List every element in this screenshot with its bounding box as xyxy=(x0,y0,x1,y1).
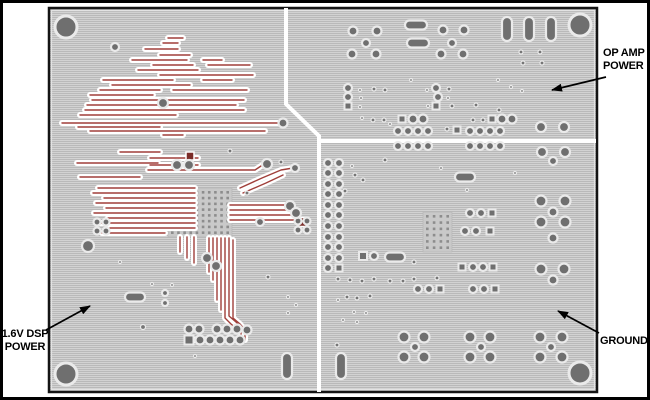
square-pad xyxy=(437,286,444,293)
via-pad xyxy=(335,211,343,219)
via-pad xyxy=(279,119,288,128)
micro-via xyxy=(360,279,364,283)
mounting-hole xyxy=(55,363,77,385)
square-pad xyxy=(185,336,194,345)
micro-via xyxy=(521,61,525,65)
oval-pad xyxy=(336,353,346,379)
micro-via xyxy=(440,167,443,170)
dsp-bga-footprint-pad xyxy=(196,231,199,234)
via-pad xyxy=(536,122,546,132)
micro-via xyxy=(410,79,413,82)
via-pad xyxy=(335,243,343,251)
dsp-bga-footprint-pad xyxy=(214,208,217,211)
micro-via xyxy=(450,104,454,108)
via-pad xyxy=(434,93,442,101)
dsp-bga-footprint-pad xyxy=(214,226,217,229)
micro-via xyxy=(353,311,356,314)
micro-via xyxy=(355,296,359,300)
via-pad xyxy=(370,252,378,260)
via-pad xyxy=(476,127,484,135)
via-pad xyxy=(394,127,402,135)
via-pad xyxy=(476,142,484,150)
via-pad xyxy=(373,27,382,36)
micro-via xyxy=(279,160,283,164)
via-pad xyxy=(486,142,494,150)
ic-footprint-pad xyxy=(446,228,449,231)
via-pad xyxy=(291,164,299,172)
ic-footprint-pad xyxy=(426,228,429,231)
micro-via xyxy=(345,295,349,299)
via-pad xyxy=(223,325,232,334)
micro-via xyxy=(383,158,387,162)
via-pad xyxy=(414,127,422,135)
dsp-bga-footprint-pad xyxy=(208,214,211,217)
ic-footprint-pad xyxy=(440,228,443,231)
via-pad xyxy=(480,285,488,293)
via-pad xyxy=(536,264,547,275)
via-pad xyxy=(324,180,332,188)
dsp-bga-footprint-pad xyxy=(208,220,211,223)
dsp-bga-footprint-pad xyxy=(220,220,223,223)
oval-pad xyxy=(405,21,427,30)
micro-via xyxy=(426,89,429,92)
via-pad xyxy=(226,336,235,345)
label-dsp-power-line1: 1.6V DSP xyxy=(1,328,49,341)
via-pad xyxy=(262,159,272,169)
via-pad xyxy=(536,217,547,228)
micro-via xyxy=(337,299,340,302)
via-pad xyxy=(94,219,101,226)
dsp-bga-footprint-pad xyxy=(171,231,174,234)
via-pad xyxy=(535,332,546,343)
micro-via xyxy=(361,178,365,182)
micro-via xyxy=(266,275,270,279)
micro-via xyxy=(359,89,362,92)
square-pad xyxy=(459,264,466,271)
ic-footprint-pad xyxy=(446,240,449,243)
label-ground-line1: GROUND xyxy=(600,335,650,348)
via-pad xyxy=(158,98,168,108)
micro-via xyxy=(540,61,544,65)
via-pad xyxy=(439,26,448,35)
dsp-bga-footprint-pad xyxy=(220,203,223,206)
micro-via xyxy=(481,118,485,122)
micro-via xyxy=(141,325,146,330)
dsp-bga-footprint-pad xyxy=(214,203,217,206)
via-pad xyxy=(213,325,222,334)
dsp-bga-footprint-pad xyxy=(202,220,205,223)
via-pad xyxy=(172,160,182,170)
ic-footprint-pad xyxy=(433,246,436,249)
via-pad xyxy=(549,208,558,217)
dsp-bga-footprint-pad xyxy=(220,197,223,200)
via-pad xyxy=(335,201,343,209)
micro-via xyxy=(194,355,197,358)
dsp-bga-footprint-pad xyxy=(208,191,211,194)
via-pad xyxy=(425,285,433,293)
ic-footprint-pad xyxy=(446,215,449,218)
ic-footprint-pad xyxy=(433,215,436,218)
via-pad xyxy=(419,115,428,124)
ic-footprint-pad xyxy=(426,240,429,243)
dsp-bga-footprint-pad xyxy=(208,197,211,200)
micro-via xyxy=(372,277,376,281)
oval-pad xyxy=(546,17,556,41)
dsp-bga-footprint-pad xyxy=(202,197,205,200)
micro-via xyxy=(412,277,416,281)
via-pad xyxy=(211,261,221,271)
dsp-bga-footprint-pad xyxy=(214,191,217,194)
micro-via xyxy=(510,86,513,89)
mounting-hole xyxy=(569,362,591,384)
dsp-bga-footprint-pad xyxy=(189,231,192,234)
oval-pad xyxy=(455,173,475,182)
label-dsp-power-line2: POWER xyxy=(1,341,49,354)
via-pad xyxy=(498,115,507,124)
via-pad xyxy=(324,159,332,167)
micro-via xyxy=(514,172,517,175)
via-pad xyxy=(324,190,332,198)
via-pad xyxy=(466,142,474,150)
via-pad xyxy=(184,160,194,170)
via-pad xyxy=(485,332,496,343)
label-ground: GROUND xyxy=(600,335,650,348)
micro-via xyxy=(521,90,524,93)
micro-via xyxy=(359,106,362,109)
via-pad xyxy=(469,285,477,293)
via-pad xyxy=(419,332,430,343)
micro-via xyxy=(447,97,450,100)
dsp-bga-footprint-pad xyxy=(220,231,223,234)
via-pad xyxy=(243,326,252,335)
via-pad xyxy=(549,157,557,165)
label-op-amp-power-line1: OP AMP xyxy=(603,47,649,60)
micro-via xyxy=(348,278,352,282)
dsp-bga-footprint-pad xyxy=(202,191,205,194)
via-pad xyxy=(485,352,496,363)
ic-footprint-pad xyxy=(426,221,429,224)
dsp-bga-footprint-pad xyxy=(183,231,186,234)
via-pad xyxy=(324,169,332,177)
ic-footprint-pad xyxy=(433,228,436,231)
via-pad xyxy=(508,115,517,124)
via-pad xyxy=(496,142,504,150)
via-pad xyxy=(162,300,168,306)
via-pad xyxy=(486,127,494,135)
via-pad xyxy=(459,50,468,59)
pcb-board-graphic xyxy=(0,0,650,400)
micro-via xyxy=(287,296,290,299)
via-pad xyxy=(557,352,568,363)
square-pad xyxy=(489,116,496,123)
ic-footprint-pad xyxy=(440,221,443,224)
via-pad xyxy=(466,209,474,217)
via-pad xyxy=(437,50,446,59)
via-pad xyxy=(324,233,332,241)
via-pad xyxy=(94,228,101,235)
via-pad xyxy=(162,290,168,296)
dsp-bga-footprint-pad xyxy=(208,231,211,234)
via-pad xyxy=(362,39,370,47)
via-pad xyxy=(414,142,422,150)
via-pad xyxy=(424,142,432,150)
ic-footprint-pad xyxy=(440,215,443,218)
dsp-bga-footprint-pad xyxy=(226,226,229,229)
ic-footprint-pad xyxy=(446,221,449,224)
label-op-amp-power: OP AMP POWER xyxy=(603,47,649,72)
dsp-bga-footprint-pad xyxy=(226,191,229,194)
dsp-bga-footprint-pad xyxy=(214,231,217,234)
via-pad xyxy=(549,234,558,243)
micro-via xyxy=(342,319,345,322)
mounting-hole xyxy=(55,16,77,38)
via-pad xyxy=(233,325,242,334)
ic-footprint-pad xyxy=(446,234,449,237)
via-pad xyxy=(216,336,225,345)
dsp-bga-footprint-pad xyxy=(220,214,223,217)
via-pad xyxy=(335,222,343,230)
via-pad xyxy=(477,343,485,351)
via-pad xyxy=(549,276,558,285)
micro-via xyxy=(171,284,174,287)
via-pad xyxy=(394,142,402,150)
ic-footprint-pad xyxy=(440,246,443,249)
micro-via xyxy=(519,50,523,54)
ic-footprint xyxy=(423,212,452,252)
micro-via xyxy=(351,165,354,168)
square-pad xyxy=(399,116,406,123)
via-pad xyxy=(344,93,352,101)
ic-footprint-pad xyxy=(426,246,429,249)
micro-via xyxy=(353,173,357,177)
oval-pad xyxy=(282,353,292,379)
via-pad xyxy=(559,122,569,132)
micro-via xyxy=(497,79,500,82)
via-pad xyxy=(291,208,301,218)
via-pad xyxy=(557,332,568,343)
via-pad xyxy=(335,254,343,262)
micro-via xyxy=(245,191,249,195)
micro-via xyxy=(466,189,469,192)
micro-via xyxy=(151,283,154,286)
micro-via xyxy=(360,97,363,100)
dsp-bga-footprint-pad xyxy=(214,214,217,217)
via-pad xyxy=(460,26,469,35)
via-pad xyxy=(304,218,311,225)
square-pad xyxy=(359,252,367,260)
dsp-bga-footprint-pad xyxy=(220,208,223,211)
via-pad xyxy=(466,127,474,135)
micro-via xyxy=(295,304,298,307)
ic-footprint-pad xyxy=(426,234,429,237)
via-pad xyxy=(414,285,422,293)
micro-via xyxy=(361,117,364,120)
via-pad xyxy=(344,84,352,92)
oval-pad xyxy=(407,39,429,48)
micro-via xyxy=(343,189,347,193)
micro-via xyxy=(119,261,122,264)
square-pad xyxy=(489,210,496,217)
via-pad xyxy=(537,147,547,157)
via-pad xyxy=(547,343,555,351)
via-pad xyxy=(206,336,215,345)
ic-footprint-pad xyxy=(433,221,436,224)
dsp-bga-footprint-pad xyxy=(177,231,180,234)
dsp-bga-footprint-pad xyxy=(202,226,205,229)
via-pad xyxy=(560,196,571,207)
via-pad xyxy=(461,227,469,235)
via-pad xyxy=(256,218,264,226)
via-pad xyxy=(349,27,358,36)
via-pad xyxy=(111,43,119,51)
dsp-bga-footprint-pad xyxy=(214,197,217,200)
micro-via xyxy=(372,87,376,91)
square-pad xyxy=(345,103,352,110)
square-pad xyxy=(454,127,461,134)
via-pad xyxy=(419,352,430,363)
via-pad xyxy=(324,222,332,230)
label-dsp-power: 1.6V DSP POWER xyxy=(1,328,49,353)
micro-via xyxy=(388,279,392,283)
micro-via xyxy=(228,149,232,153)
micro-via xyxy=(412,260,416,264)
dsp-bga-footprint-pad xyxy=(202,203,205,206)
oval-pad xyxy=(125,293,145,302)
via-pad xyxy=(536,196,547,207)
micro-via xyxy=(538,50,542,54)
via-pad xyxy=(335,159,343,167)
mounting-hole xyxy=(569,14,591,36)
oval-pad xyxy=(524,17,534,41)
via-pad xyxy=(404,127,412,135)
micro-via xyxy=(382,118,386,122)
ic-footprint-pad xyxy=(426,215,429,218)
via-pad xyxy=(424,127,432,135)
via-pad xyxy=(560,217,571,228)
dsp-bga-footprint-pad xyxy=(202,214,205,217)
micro-via xyxy=(335,343,339,347)
ic-footprint-pad xyxy=(440,240,443,243)
via-pad xyxy=(295,227,302,234)
micro-via xyxy=(371,118,375,122)
via-pad xyxy=(335,233,343,241)
via-pad xyxy=(324,201,332,209)
ic-footprint-pad xyxy=(440,234,443,237)
via-pad xyxy=(372,50,381,59)
micro-via xyxy=(435,276,439,280)
via-pad xyxy=(103,219,110,226)
ic-footprint-pad xyxy=(433,240,436,243)
via-pad xyxy=(82,240,94,252)
via-pad xyxy=(535,352,546,363)
via-pad xyxy=(448,39,456,47)
dsp-bga-footprint-pad xyxy=(220,191,223,194)
via-pad xyxy=(432,84,440,92)
dsp-bga-footprint-pad xyxy=(202,208,205,211)
micro-via xyxy=(356,321,359,324)
square-pad xyxy=(490,264,497,271)
via-pad xyxy=(236,336,245,345)
micro-via xyxy=(389,123,392,126)
micro-via xyxy=(447,87,451,91)
via-pad xyxy=(324,243,332,251)
via-pad xyxy=(195,325,204,334)
micro-via xyxy=(445,127,449,131)
via-pad xyxy=(324,264,332,272)
micro-via xyxy=(336,277,340,281)
via-pad xyxy=(103,228,110,235)
square-pad xyxy=(487,228,494,235)
oval-pad xyxy=(502,17,512,41)
via-pad xyxy=(348,50,357,59)
via-pad xyxy=(399,332,410,343)
dsp-bga-footprint-pad xyxy=(214,220,217,223)
dsp-bga-footprint-pad xyxy=(226,197,229,200)
micro-via xyxy=(383,88,387,92)
via-pad xyxy=(335,190,343,198)
via-pad xyxy=(465,352,476,363)
micro-via xyxy=(497,108,501,112)
via-pad xyxy=(479,263,487,271)
via-pad xyxy=(404,142,412,150)
micro-via xyxy=(471,118,475,122)
via-pad xyxy=(304,227,311,234)
via-pad xyxy=(496,127,504,135)
via-pad xyxy=(472,227,480,235)
ic-footprint-pad xyxy=(446,246,449,249)
dsp-bga-footprint-pad xyxy=(208,226,211,229)
pcb-diagram-canvas: OP AMP POWER 1.6V DSP POWER GROUND xyxy=(0,0,650,400)
via-pad xyxy=(335,180,343,188)
via-pad xyxy=(324,254,332,262)
micro-via xyxy=(287,312,290,315)
via-pad xyxy=(324,211,332,219)
via-pad xyxy=(335,169,343,177)
micro-via xyxy=(365,312,368,315)
square-pad xyxy=(433,103,440,110)
ic-footprint-pad xyxy=(433,234,436,237)
label-op-amp-power-line2: POWER xyxy=(603,60,649,73)
via-pad xyxy=(202,253,212,263)
micro-via xyxy=(427,105,430,108)
via-pad xyxy=(185,325,194,334)
oval-pad xyxy=(385,253,405,262)
trace-square-pad xyxy=(186,152,194,160)
via-pad xyxy=(559,264,570,275)
square-pad xyxy=(492,286,499,293)
square-pad xyxy=(336,265,343,272)
via-pad xyxy=(399,352,410,363)
dsp-bga-footprint-pad xyxy=(208,203,211,206)
micro-via xyxy=(474,103,478,107)
via-pad xyxy=(469,263,477,271)
micro-via xyxy=(368,294,372,298)
via-pad xyxy=(409,115,418,124)
via-pad xyxy=(560,147,570,157)
micro-via xyxy=(401,279,405,283)
via-pad xyxy=(411,343,419,351)
dsp-bga-footprint-pad xyxy=(208,208,211,211)
via-pad xyxy=(196,336,205,345)
dsp-bga-footprint-pad xyxy=(226,231,229,234)
via-pad xyxy=(477,209,485,217)
dsp-bga-footprint-pad xyxy=(220,226,223,229)
dsp-bga-footprint-pad xyxy=(202,231,205,234)
via-pad xyxy=(465,332,476,343)
